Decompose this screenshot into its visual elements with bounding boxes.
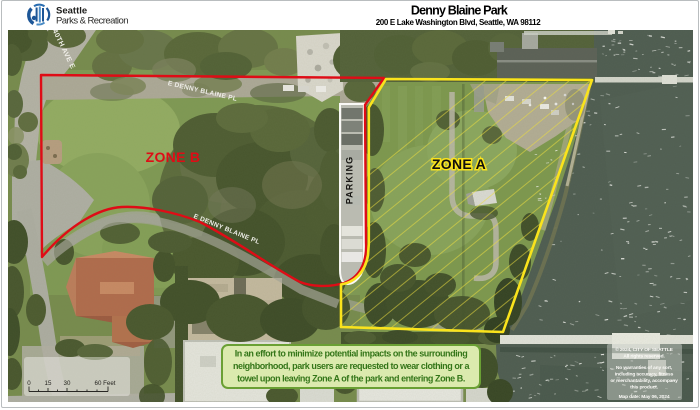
svg-text:Parks & Recreation: Parks & Recreation — [56, 16, 128, 27]
svg-text:200 E Lake Washington Blvd, Se: 200 E Lake Washington Blvd, Seattle, WA … — [376, 18, 542, 27]
svg-text:Denny Blaine Park: Denny Blaine Park — [411, 4, 508, 18]
